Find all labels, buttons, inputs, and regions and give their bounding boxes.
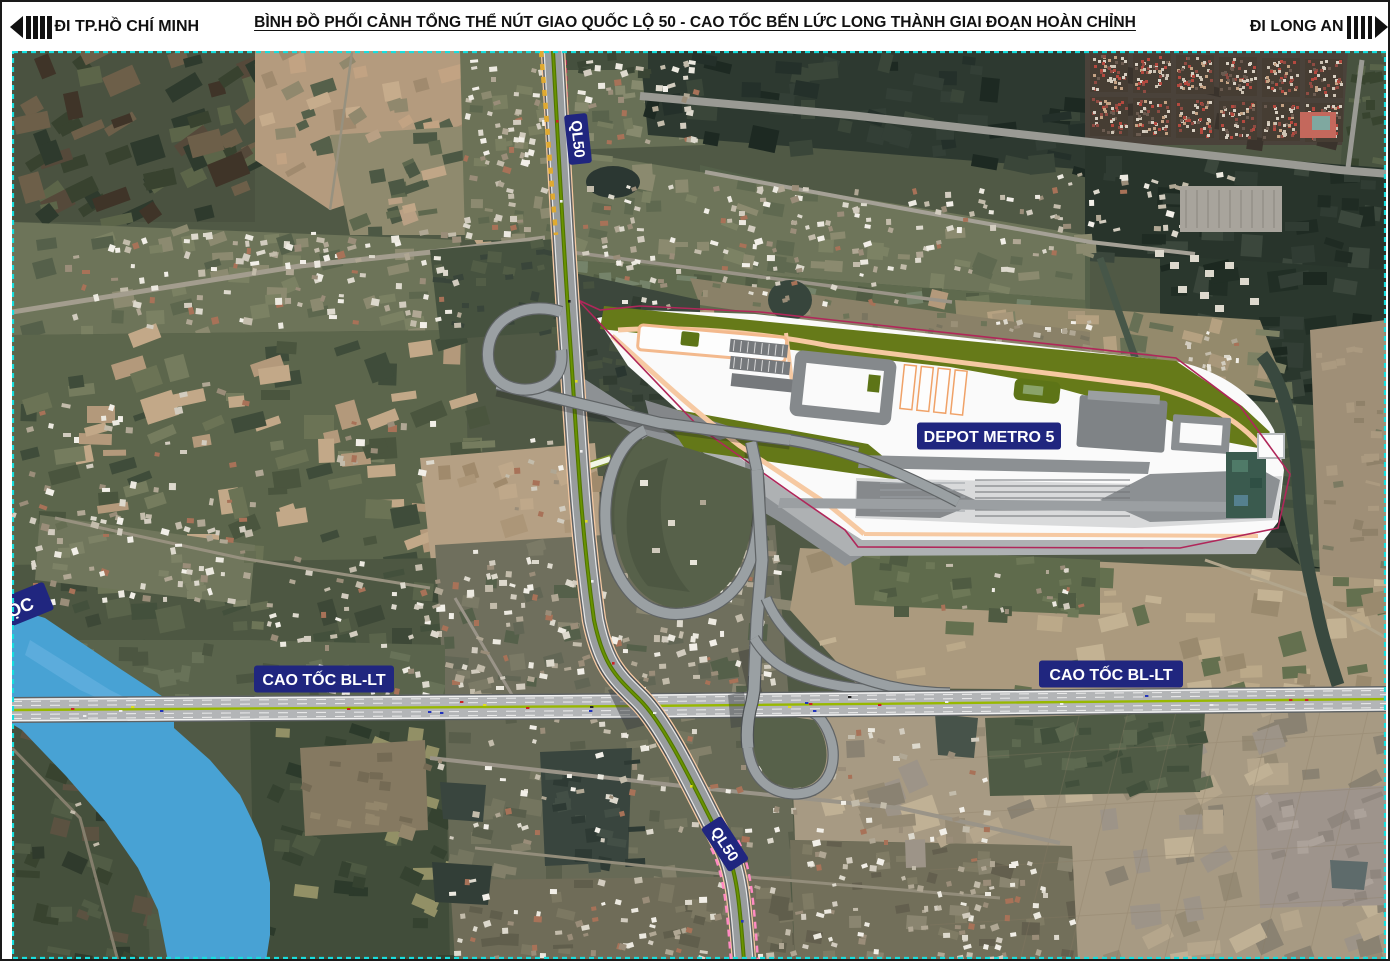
- svg-text:DEPOT METRO 5: DEPOT METRO 5: [924, 429, 1055, 446]
- svg-text:CAO TỐC BL-LT: CAO TỐC BL-LT: [1049, 664, 1172, 684]
- svg-text:CAO TỐC BL-LT: CAO TỐC BL-LT: [262, 669, 385, 689]
